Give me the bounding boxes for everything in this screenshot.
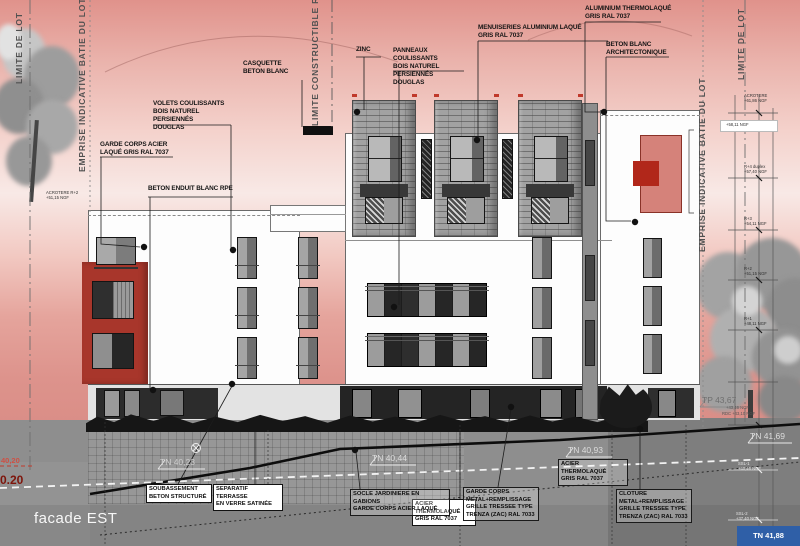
ssl2-label: SSL-2 +37,40 NGF [736,511,759,522]
ladder-r2-label: R+2 +51,15 NGF [744,266,767,277]
facade-drawing: LIMITE DE LOT EMPRISE INDICATIVE BATIE D… [0,0,800,546]
separatif-callout: SEPARATIF TERRASSE EN VERRE SATINÉE [213,484,283,511]
limite-constructible-label: LIMITE CONSTRUCTIBLE R+4 [310,0,320,126]
tp-43-67-label: TP 43,67 [702,395,736,405]
aluminium-callout: ALUMINIUM THERMOLAQUÉ GRIS RAL 7037 [585,5,695,21]
limite-lot-right-label: LIMITE DE LOT [736,8,746,80]
boundary-lines [30,0,745,470]
garde-corps-acier-callout: GARDE CORPS ACIER LAQUÉ GRIS RAL 7037 [100,141,180,157]
drawing-title: facade EST [34,510,117,527]
leader-lines [100,22,669,499]
beton-enduit-callout: BETON ENDUIT BLANC RPE [148,185,238,193]
casquette-callout: CASQUETTE BETON BLANC [243,60,307,76]
acier-thermo-right-callout: ACIER THERMOLAQUÉ GRIS RAL 7037 [558,459,628,486]
ssl1-label: SSL-1 +40,46 NGF [738,461,761,472]
ladder-acrotere-label: ACROTERE +61,86 NGF [744,93,767,104]
tn-40-44-label: TN 40,44 [372,453,407,463]
socle-callout: SOCLE JARDINIERE EN GABIONS GARDE CORPS … [350,489,450,516]
soubassement-callout: SOUBASSEMENT BETON STRUCTURÉ [146,484,212,503]
panneaux-callout: PANNEAUX COULISSANTS BOIS NATUREL PERSIE… [393,47,473,87]
emprise-right-label: EMPRISE INDICATIVE BATIE DU LOT [697,78,707,252]
volets-callout: VOLETS COULISSANTS BOIS NATUREL PERSIENN… [153,100,235,132]
cloture-callout: CLOTURE METAL+REMPLISSAGE GRILLE TRESSEE… [616,489,692,523]
level-left-bottom: 0.20 [0,473,23,487]
garde-corps-metal-callout: GARDE CORPS METAL+REMPLISSAGE GRILLE TRE… [463,487,539,521]
zinc-callout: ZINC [356,46,371,54]
tn-flag-marks [158,398,792,469]
ladder-r4-label: R+4 duplex +57,40 NGF [744,164,767,175]
rdc-tp-label: RDC +43,10 NGF [722,411,755,416]
tn-40-23-label: TN 40,23 [160,457,195,467]
emprise-left-label: EMPRISE INDICATIVE BATIE DU LOT [77,0,87,172]
level-left-top: 40,20 [1,456,20,465]
beton-blanc-callout: BETON BLANC ARCHITECTONIQUE [606,41,696,57]
tn-41-69-label: TN 41,69 [750,431,785,441]
ladder-r3-label: R+3 +54,11 NGF [744,216,767,227]
ladder-r1-label: R+1 +48,11 NGF [744,316,767,327]
acrotere-r2-label: ACROTERE R+2 +51,15 NGF [46,190,78,201]
corner-badge: TN 41,88 [737,526,800,546]
tn-40-93-label: TN 40,93 [568,445,603,455]
menuiseries-callout: MENUISERIES ALUMINIUM LAQUÉ GRIS RAL 703… [478,24,618,40]
ladder-band-label: +58,11 NGF [726,122,749,127]
limite-lot-left-label: LIMITE DE LOT [14,12,24,84]
tp-sub-label: +43,46 NGF [726,405,749,410]
terrain-lines [0,422,800,546]
leader-dots [141,109,643,453]
